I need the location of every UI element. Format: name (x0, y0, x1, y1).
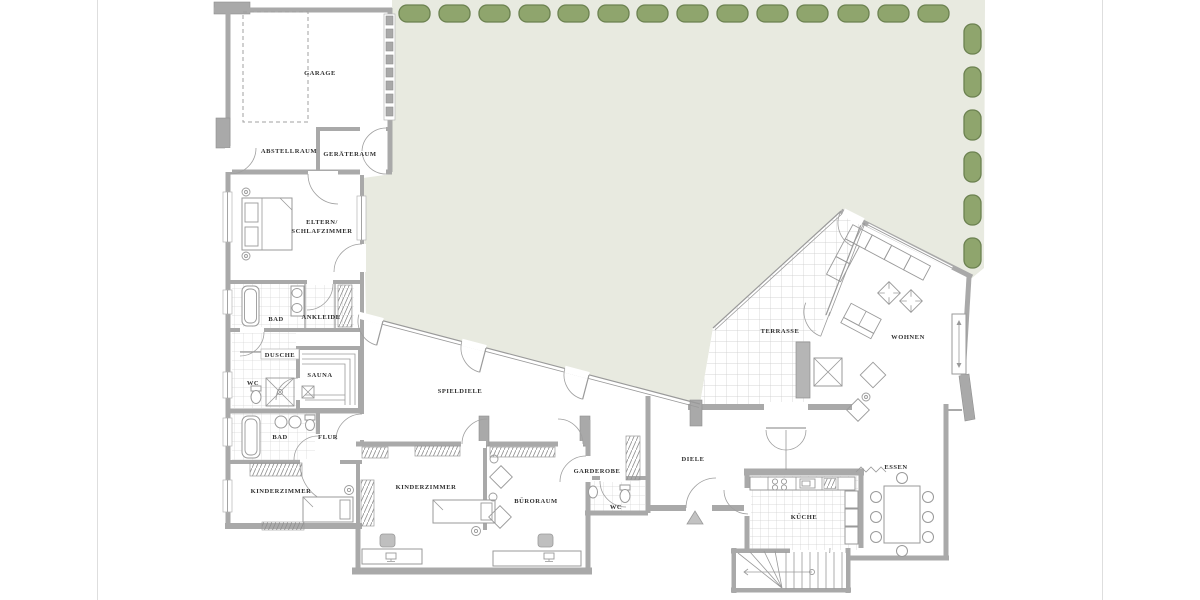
double-sink-bottom (275, 415, 315, 431)
bed-kinder-ost (433, 500, 495, 536)
room-label-garage: GARAGE (304, 70, 336, 77)
room-label-diele: DIELE (682, 456, 705, 463)
room-label-kinder-west: KINDERZIMMER (251, 488, 312, 495)
dining-set (871, 473, 934, 557)
double-bed (242, 188, 292, 260)
stairs (736, 551, 846, 589)
room-label-bueroraum: BÜRORAUM (514, 498, 557, 505)
room-label-kinder-ost: KINDERZIMMER (396, 484, 457, 491)
bathtub-bottom (242, 416, 260, 458)
loveseat (841, 303, 881, 338)
room-label-schlafzimmer-2: SCHLAFZIMMER (291, 228, 352, 235)
room-label-essen: ESSEN (884, 464, 907, 471)
room-label-geraeteraum: GERÄTERAUM (323, 151, 376, 158)
desk-buero (493, 534, 581, 566)
room-label-ankleide: ANKLEIDE (301, 314, 340, 321)
entrance-marker (687, 511, 703, 524)
wardrobe-kinder-ost-2 (415, 446, 460, 456)
sideboard (952, 314, 966, 374)
double-sink-top (291, 286, 304, 316)
room-label-abstellraum: ABSTELLRAUM (261, 148, 317, 155)
room-label-wc-bad: WC (247, 380, 259, 387)
room-label-garderobe: GARDEROBE (574, 468, 621, 475)
toilet-bath (251, 386, 261, 404)
coat-rack (626, 436, 640, 480)
room-label-terrasse: TERRASSE (761, 328, 800, 335)
garage-louver-wall (384, 14, 395, 120)
armchairs-wohnen (847, 362, 886, 421)
room-label-flur: FLUR (318, 434, 338, 441)
fireplace (796, 342, 842, 398)
sauna-benches (302, 354, 355, 405)
garage-parking-space (243, 12, 308, 122)
wardrobe-buero (490, 447, 555, 457)
room-label-wohnen: WOHNEN (891, 334, 925, 341)
floor-plan-page: GARAGE ABSTELLRAUM GERÄTERAUM ELTERN/ SC… (0, 0, 1200, 600)
room-label-wc-diele: WC (610, 504, 622, 511)
wardrobe-kinder-ost-1 (362, 447, 388, 458)
room-label-dusche: DUSCHE (265, 352, 295, 359)
bathtub-top (242, 286, 259, 326)
wardrobe-kinder-west (250, 463, 302, 476)
coffee-tables (878, 282, 923, 313)
room-label-bad-kinder: BAD (272, 434, 287, 441)
desk-kinder-ost (362, 534, 422, 564)
wardrobe-divider (361, 480, 374, 526)
room-label-kueche: KÜCHE (791, 514, 818, 521)
room-label-spieldiele: SPIELDIELE (438, 388, 483, 395)
room-label-bad-og: BAD (268, 316, 283, 323)
room-label-schlafzimmer-1: ELTERN/ (306, 219, 338, 226)
floor-plan-drawing: GARAGE ABSTELLRAUM GERÄTERAUM ELTERN/ SC… (0, 0, 1200, 600)
room-label-sauna: SAUNA (307, 372, 332, 379)
